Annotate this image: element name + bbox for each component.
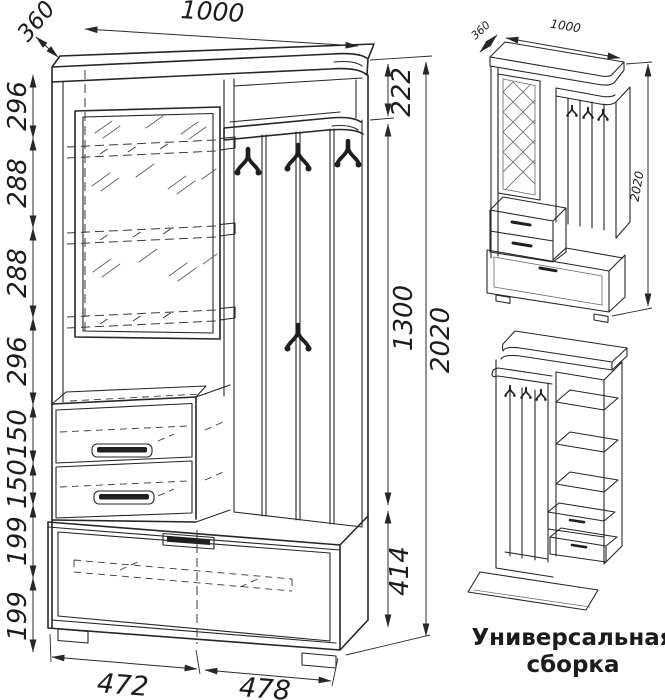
bottom-cabinet <box>48 512 368 668</box>
hidden-shelf-2 <box>67 226 216 244</box>
caption-line-1: Универсальная <box>471 625 665 651</box>
left-foot <box>58 629 88 643</box>
drawer-1 <box>56 404 192 464</box>
dim-label: 360 <box>13 0 61 47</box>
dim-label: 414 <box>385 546 415 596</box>
hook-shelf <box>556 88 616 105</box>
top-slab <box>501 331 627 370</box>
caption-line-2: сборка <box>526 652 619 678</box>
handle-bar <box>99 494 149 500</box>
coat-hook-icon <box>285 325 312 352</box>
flap-door <box>58 532 330 641</box>
foot <box>594 314 608 322</box>
dim-label: 199 <box>3 591 33 641</box>
drawer-handle-bar <box>572 545 586 547</box>
drawer-handle-bar <box>570 520 584 522</box>
dim-bottom: 472 478 <box>50 634 338 700</box>
mirror-frame-outer <box>75 107 220 339</box>
center-stile <box>224 79 234 512</box>
dim-chain-right: 222 1300 414 <box>385 64 419 627</box>
hook-column <box>556 87 630 238</box>
drawer-unit <box>52 385 230 522</box>
shelf-end-2 <box>220 223 235 236</box>
dim-label: 150 <box>3 459 33 509</box>
open-drawer-1 <box>548 503 615 537</box>
dimensions: 296 288 288 296 150 150 199 199 1000 360 <box>3 0 456 700</box>
slab-outline <box>490 42 624 85</box>
coat-hook-icon <box>597 110 608 121</box>
coat-hook-icon <box>285 145 312 172</box>
drawing-canvas: 296 288 288 296 150 150 199 199 1000 360 <box>0 0 665 700</box>
drawer-unit-side <box>196 385 230 522</box>
dim-label: 1000 <box>549 17 582 36</box>
cabinet-top-lines <box>48 512 362 643</box>
open-drawer-2 <box>550 528 617 562</box>
shelf <box>556 432 618 452</box>
under-cornice-edge <box>234 78 362 118</box>
coat-hook-icon <box>335 141 362 168</box>
drawer-handle-bar <box>512 222 531 246</box>
assembly-view-open: Универсальная сборка <box>468 331 665 678</box>
dim-label: 296 <box>3 81 33 131</box>
dim-label: 150 <box>3 409 33 459</box>
dim-top: 1000 360 <box>13 0 358 57</box>
shelf <box>556 390 618 410</box>
furniture-technical-drawing: 296 288 288 296 150 150 199 199 1000 360 <box>0 0 665 700</box>
door-inner-line <box>474 590 590 607</box>
handle-bar <box>97 447 147 453</box>
assembly-view-closed: 1000 360 2020 <box>469 17 652 323</box>
coat-hooks <box>235 141 362 352</box>
front-view: 296 288 288 296 150 150 199 199 1000 360 <box>3 0 456 700</box>
dim-label: 360 <box>469 19 493 43</box>
side-plane <box>616 87 630 238</box>
top-slab <box>490 42 624 85</box>
mid-shelf-back <box>230 112 340 122</box>
right-foot <box>302 653 336 668</box>
column-edges <box>556 362 622 564</box>
mirror-frame-inner <box>83 114 213 334</box>
mirror-column-edges <box>491 66 498 258</box>
mirror-crosshatch <box>495 44 545 200</box>
dim-label: 1300 <box>389 285 419 351</box>
cornice-outline <box>52 44 374 82</box>
drawer-2 <box>56 461 192 518</box>
bottom-box-outline <box>487 248 625 312</box>
dim-label: 478 <box>238 672 292 700</box>
mid-shelf <box>224 112 363 140</box>
hook-panel <box>224 75 368 527</box>
mirror-column <box>491 44 545 258</box>
dim-label: 199 <box>3 516 33 566</box>
drawer-1-handle <box>92 444 152 457</box>
open-drawers <box>548 503 617 562</box>
drawer-2-handle <box>94 491 154 504</box>
dim-label: 296 <box>3 336 33 386</box>
open-shelf-column <box>556 362 622 564</box>
dim-label: 1000 <box>180 0 245 28</box>
dim-label: 288 <box>3 248 33 298</box>
band-outline <box>492 368 552 384</box>
dim-label: 472 <box>96 668 150 700</box>
hidden-shelf-3 <box>67 310 216 328</box>
door-handle <box>163 534 214 550</box>
shelf-end-3 <box>220 307 235 320</box>
dim-chain-left: 296 288 288 296 150 150 199 199 <box>3 75 33 652</box>
cornice-corner-echo <box>334 62 362 67</box>
caption: Универсальная сборка <box>471 625 665 678</box>
dim-label: 222 <box>387 67 417 117</box>
dim-label: 288 <box>3 158 33 208</box>
coat-hook-icon <box>535 390 546 401</box>
cabinet-interior <box>496 552 553 577</box>
open-flap-door <box>468 552 598 610</box>
door-handle-bar <box>540 268 556 271</box>
coat-hook-icon <box>235 149 262 176</box>
top-cornice <box>52 44 374 82</box>
slab-outline <box>501 331 627 370</box>
dim-label: 2020 <box>426 307 456 373</box>
handle-bar <box>167 536 210 545</box>
hidden-shelf-1 <box>67 140 216 158</box>
door-panel <box>468 572 598 610</box>
cabinet-hidden-shelf <box>74 560 292 591</box>
shelf <box>556 472 618 492</box>
